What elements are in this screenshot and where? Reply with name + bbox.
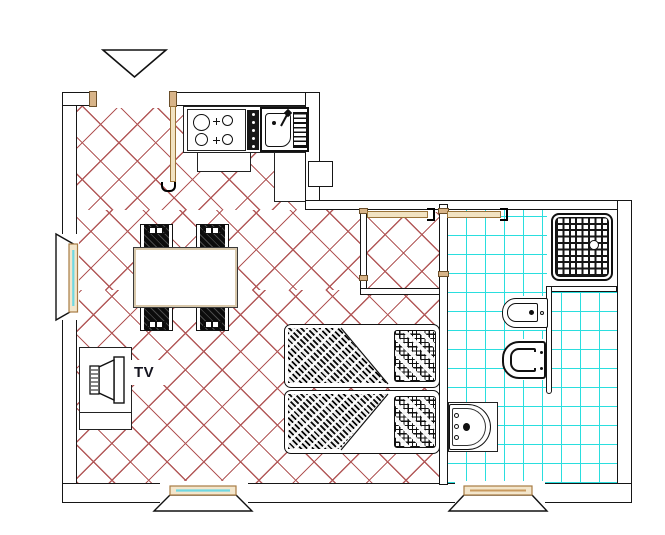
entrance-marker-triangle bbox=[103, 50, 166, 77]
overlay-graphics bbox=[0, 0, 665, 535]
window-bottom2-sill bbox=[449, 495, 547, 511]
sheet-fold-line-bottom bbox=[341, 394, 388, 450]
sheet-fold-line-top bbox=[341, 328, 388, 384]
floor-plan: TV bbox=[0, 0, 665, 535]
tv-label: TV bbox=[134, 364, 154, 381]
sink-faucet-base bbox=[284, 109, 292, 117]
tv-back bbox=[114, 357, 124, 403]
window-bottom1-sill bbox=[154, 495, 252, 511]
tv-body bbox=[99, 360, 114, 400]
